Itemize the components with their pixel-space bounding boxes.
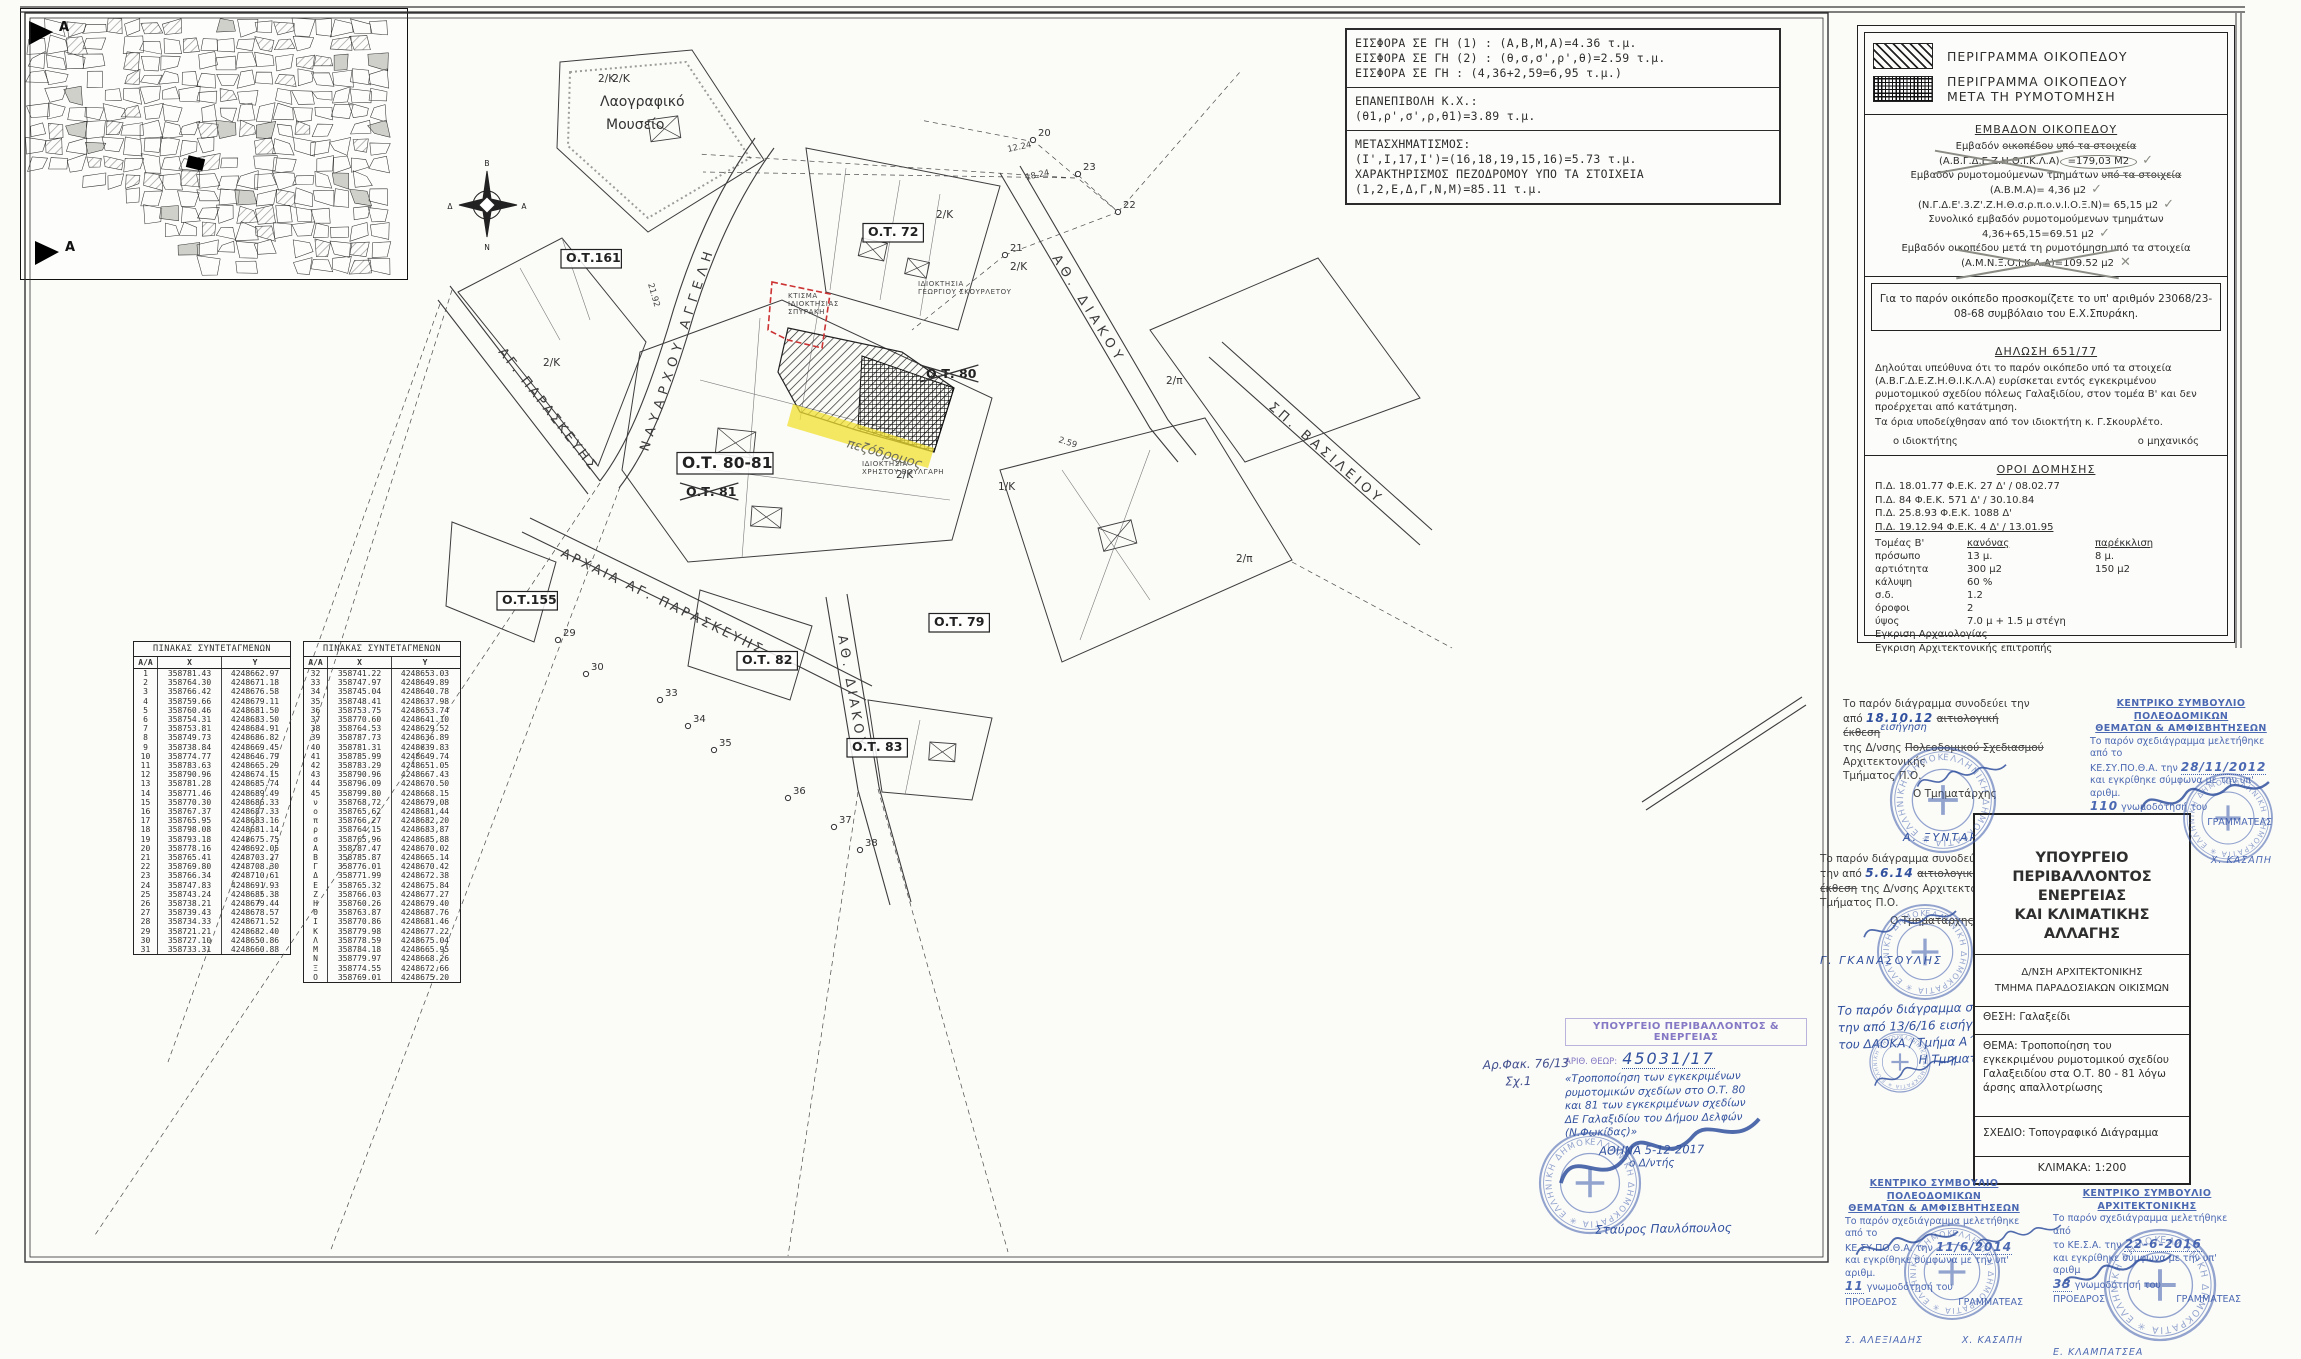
table-cell: 41 bbox=[304, 752, 328, 761]
inset-parcel bbox=[46, 138, 63, 155]
table-cell: 43 bbox=[304, 770, 328, 779]
inset-parcel bbox=[216, 227, 235, 239]
survey-point bbox=[685, 723, 690, 728]
table-cell: Ζ bbox=[304, 890, 328, 899]
property-label: ΙΔΙΟΚΤΗΣΙΑΓΕΩΡΓΙΟΥ ΣΚΟΥΡΛΕΤΟΥ bbox=[918, 280, 1012, 296]
table-cell: 39 bbox=[304, 733, 328, 742]
table-row: 17358765.954248683.16 bbox=[134, 816, 290, 825]
table-cell: 358799.80 bbox=[328, 789, 392, 798]
inset-parcel bbox=[83, 54, 105, 69]
stamp-roles: ΠΡΟΕΔΡΟΣΓΡΑΜΜΑΤΕΑΣ bbox=[1845, 1297, 2023, 1310]
inset-parcel bbox=[123, 137, 142, 156]
inset-parcel bbox=[312, 124, 333, 137]
parcel-label: 1/Κ bbox=[998, 481, 1016, 493]
table-cell: 27 bbox=[134, 908, 158, 917]
contribution-line: ΕΙΣΦΟΡΑ ΣΕ ΓΗ (1) : (Α,Β,Μ,Α)=4.36 τ.μ. bbox=[1355, 36, 1771, 51]
plot-outline-swatch bbox=[1873, 43, 1933, 69]
survey-point bbox=[711, 747, 716, 752]
oroi-cell bbox=[2095, 615, 2195, 628]
table-cell: 4248681.14 bbox=[222, 825, 288, 834]
inset-parcel bbox=[197, 207, 219, 219]
inset-parcel bbox=[254, 156, 278, 171]
signature-name: Σταύρος Παυλόπουλος bbox=[1595, 1220, 1807, 1237]
table-cell: 358743.24 bbox=[158, 890, 222, 899]
inset-parcel bbox=[296, 207, 312, 221]
declaration-text: Δηλούται υπεύθυνα ότι το παρόν οικόπεδο … bbox=[1875, 362, 2217, 414]
area-line: Συνολικό εμβαδόν ρυμοτομούμενων τμημάτων bbox=[1873, 213, 2219, 227]
inset-parcel bbox=[293, 176, 314, 185]
table-cell: 4248677.27 bbox=[392, 890, 458, 899]
table-row: 18358798.084248681.14 bbox=[134, 825, 290, 834]
inset-parcel bbox=[255, 226, 275, 241]
legend-box: ΠΕΡΙΓΡΑΜΜΑ ΟΙΚΟΠΕΔΟΥ ΠΕΡΙΓΡΑΜΜΑ ΟΙΚΟΠΕΔΟ… bbox=[1857, 25, 2235, 643]
ministry-title: ΥΠΟΥΡΓΕΙΟ ΠΕΡΙΒΑΛΛΟΝΤΟΣ ΕΝΕΡΓΕΙΑΣ ΚΑΙ ΚΛ… bbox=[1975, 815, 2189, 955]
table-row: 27358739.434248678.57 bbox=[134, 908, 290, 917]
sheet-number: Σχ.1 bbox=[1505, 1072, 1570, 1091]
table-cell: 6 bbox=[134, 715, 158, 724]
inset-parcel bbox=[27, 38, 46, 54]
inset-parcel bbox=[276, 205, 292, 222]
stamp-roles: ΠΡΟΕΔΡΟΣΓΡΑΜΜΑΤΕΑΣ bbox=[2053, 1294, 2241, 1307]
contribution-line: (θ1,ρ',σ',ρ,θ1)=3.89 τ.μ. bbox=[1355, 109, 1771, 124]
table-cell: 4248637.98 bbox=[392, 697, 458, 706]
table-row: 5358760.464248681.50 bbox=[134, 706, 290, 715]
table-row: 32358741.224248653.03 bbox=[304, 669, 460, 678]
table-cell: 358739.43 bbox=[158, 908, 222, 917]
table-row: 21358765.414248703.27 bbox=[134, 853, 290, 862]
crossed-out-mark bbox=[920, 365, 978, 382]
table-cell: 4248679.11 bbox=[222, 697, 288, 706]
inset-parcel bbox=[315, 239, 330, 257]
table-cell: 4248681.46 bbox=[392, 917, 458, 926]
table-cell: 358790.96 bbox=[158, 770, 222, 779]
inset-parcel bbox=[350, 36, 371, 50]
inset-parcel bbox=[350, 223, 368, 242]
stamp-header: ΘΕΜΑΤΩΝ & ΑΜΦΙΣΒΗΤΗΣΕΩΝ bbox=[2090, 723, 2272, 736]
inset-parcel bbox=[197, 91, 217, 103]
inset-parcel bbox=[350, 89, 371, 103]
inset-parcel bbox=[369, 156, 390, 173]
table-cell: 13 bbox=[134, 779, 158, 788]
building bbox=[929, 742, 956, 762]
table-cell: 4248671.52 bbox=[222, 917, 288, 926]
note-line: της Δ/νσης Πολεοδομικού Σχεδιασμού Αρχιτ… bbox=[1843, 741, 2083, 769]
ot-label-box bbox=[847, 739, 907, 758]
inset-parcel bbox=[274, 39, 295, 50]
table-row: 30358727.104248650.86 bbox=[134, 936, 290, 945]
inset-parcel bbox=[202, 104, 217, 121]
inset-parcel bbox=[256, 190, 276, 206]
table-cell: 3 bbox=[134, 687, 158, 696]
table-cell: 4248670.42 bbox=[392, 862, 458, 871]
table-row: 15358770.304248686.33 bbox=[134, 798, 290, 807]
table-cell: 358779.97 bbox=[328, 954, 392, 963]
oroi-cell: 60 % bbox=[1967, 576, 2095, 589]
survey-point bbox=[583, 671, 588, 676]
table-cell: 358785.87 bbox=[328, 853, 392, 862]
inset-parcel bbox=[217, 205, 234, 223]
table-row: Ν358779.974248668.26 bbox=[304, 954, 460, 963]
inset-parcel bbox=[255, 72, 273, 84]
table-cell: 358796.09 bbox=[328, 779, 392, 788]
table-cell: 38 bbox=[304, 724, 328, 733]
table-cell: 358764.53 bbox=[328, 724, 392, 733]
table-cell: 4248629.52 bbox=[392, 724, 458, 733]
inset-parcel bbox=[294, 188, 312, 207]
owner-label: ο ιδιοκτήτης bbox=[1893, 435, 1958, 448]
table-row: Α/ΑΧΥ bbox=[304, 657, 460, 669]
inset-parcel bbox=[235, 190, 257, 205]
table-cell: 358749.73 bbox=[158, 733, 222, 742]
parcel-label: 2/Κ bbox=[598, 73, 616, 85]
table-row: 7358753.814248684.91 bbox=[134, 724, 290, 733]
inset-parcel bbox=[220, 89, 237, 102]
stamp-line: Το παρόν σχεδιάγραμμα μελετήθηκε από το bbox=[1845, 1216, 2023, 1241]
street-label: ΑΘ. ΔΙΑΚΟΥ bbox=[1049, 252, 1128, 367]
table-row: Α/ΑΧΥ bbox=[134, 657, 290, 669]
inset-parcel bbox=[370, 143, 390, 155]
table-cell: Δ bbox=[304, 871, 328, 880]
inset-parcel bbox=[292, 18, 315, 37]
table-cell: 4248636.89 bbox=[392, 733, 458, 742]
inset-parcel bbox=[159, 71, 179, 84]
inset-parcel bbox=[237, 70, 255, 88]
inset-parcel bbox=[296, 55, 314, 69]
inset-parcel bbox=[126, 175, 140, 189]
stamp-line: το ΚΕ.Σ.Α. την 22-6-2016 bbox=[2053, 1238, 2241, 1253]
inset-parcel bbox=[369, 88, 387, 101]
area-line: (Ν.Γ.Δ.Ε'.3.Ζ'.Ζ.Η.Θ.σ.ρ.π.ο.ν.Ι.Ο.Ξ.Ν)=… bbox=[1873, 198, 2219, 213]
inset-parcel bbox=[121, 105, 141, 117]
table-cell: 4248662.97 bbox=[222, 669, 288, 678]
table-row: Γ358776.014248670.42 bbox=[304, 862, 460, 871]
inset-parcel bbox=[144, 137, 162, 152]
table-cell: 40 bbox=[304, 743, 328, 752]
table-row: 39358787.734248636.89 bbox=[304, 733, 460, 742]
inset-parcel bbox=[275, 89, 291, 105]
table-cell: 4248674.15 bbox=[222, 770, 288, 779]
inset-parcel bbox=[368, 120, 391, 137]
inset-parcel bbox=[238, 19, 258, 37]
table-cell: 5 bbox=[134, 706, 158, 715]
pd-line: Π.Δ. 18.01.77 Φ.Ε.Κ. 27 Δ' / 08.02.77 bbox=[1875, 480, 2217, 494]
table-row: Α358787.474248670.02 bbox=[304, 844, 460, 853]
table-cell: 9 bbox=[134, 743, 158, 752]
inset-parcel bbox=[162, 19, 181, 35]
inset-parcel bbox=[141, 191, 163, 206]
map-labels: ΑΓ. ΠΑΡΑΣΚΕΥΗΣΝΑΥΑΡΧΟΥ ΑΓΓΕΛΗΑΘ. ΔΙΑΚΟΥΣ… bbox=[447, 72, 1386, 853]
inset-parcel bbox=[144, 103, 163, 119]
inset-parcel bbox=[369, 21, 387, 35]
file-number: Αρ.Φακ. 76/13 bbox=[1483, 1055, 1570, 1074]
inset-parcel bbox=[140, 41, 162, 54]
inset-marker-label: Α bbox=[59, 20, 69, 35]
table-title: ΠΙΝΑΚΑΣ ΣΥΝΤΕΤΑΓΜΕΝΩΝ bbox=[134, 642, 290, 657]
inset-parcel bbox=[104, 156, 124, 170]
inset-parcel bbox=[83, 38, 106, 49]
contribution-line: ΜΕΤΑΣΧΗΜΑΤΙΣΜΟΣ: bbox=[1355, 137, 1771, 152]
inset-parcel bbox=[277, 124, 293, 137]
table-cell: Ν bbox=[304, 954, 328, 963]
note-line: Το παρόν διάγραμμα συνοδεύει την bbox=[1843, 697, 2083, 711]
table-row: 9358738.844248669.45 bbox=[134, 743, 290, 752]
inset-parcel bbox=[370, 223, 389, 240]
table-cell: 4248685,88 bbox=[392, 835, 458, 844]
table-cell: 358766.34 bbox=[158, 871, 222, 880]
table-row: 12358790.964248674.15 bbox=[134, 770, 290, 779]
inset-parcel bbox=[333, 70, 354, 87]
table-cell: 4248671.18 bbox=[222, 678, 288, 687]
inset-parcel bbox=[273, 103, 293, 120]
inset-parcel bbox=[311, 73, 334, 87]
inset-parcel bbox=[125, 69, 140, 84]
inset-parcel bbox=[121, 123, 144, 136]
table-cell: 358763.87 bbox=[328, 908, 392, 917]
museum-label: Μουσείο bbox=[606, 117, 665, 133]
inset-parcel bbox=[256, 103, 275, 122]
table-cell: 1 bbox=[134, 669, 158, 678]
inset-parcel bbox=[123, 88, 141, 104]
table-cell: Υ bbox=[392, 657, 458, 668]
inset-parcel bbox=[162, 122, 183, 139]
inset-parcel bbox=[217, 74, 239, 85]
inset-parcel bbox=[26, 70, 49, 82]
inset-parcel bbox=[163, 104, 182, 122]
inset-parcel bbox=[67, 154, 87, 172]
table-cell: 20 bbox=[134, 844, 158, 853]
inset-parcel bbox=[293, 36, 314, 51]
table-cell: 4248687.33 bbox=[222, 807, 288, 816]
inset-parcel bbox=[235, 222, 258, 241]
streets bbox=[438, 138, 1806, 905]
table-cell: Θ bbox=[304, 908, 328, 917]
inset-parcel bbox=[237, 206, 258, 223]
table-row: Λ358778.594248675.04 bbox=[304, 936, 460, 945]
dimension-label: 21.92 bbox=[645, 282, 661, 308]
table-cell: 4248675.75 bbox=[222, 835, 288, 844]
inset-parcel bbox=[28, 52, 45, 69]
table-cell: 358765,96 bbox=[328, 835, 392, 844]
inset-parcel bbox=[334, 189, 349, 208]
contribution-line: ΕΠΑΝΕΠΙΒΟΛΗ Κ.Χ.: bbox=[1355, 94, 1771, 109]
table-row: 44358796.094248670.50 bbox=[304, 779, 460, 788]
table-row: 8358749.734248686.82 bbox=[134, 733, 290, 742]
inset-parcel bbox=[178, 191, 200, 207]
table-cell: 25 bbox=[134, 890, 158, 899]
table-cell: 4248682.40 bbox=[222, 927, 288, 936]
inset-parcel bbox=[180, 140, 197, 156]
inset-parcel bbox=[332, 173, 348, 189]
stamp-header: ΥΠΟΥΡΓΕΙΟ ΠΕΡΙΒΑΛΛΟΝΤΟΣ & ΕΝΕΡΓΕΙΑΣ bbox=[1565, 1018, 1807, 1046]
inset-parcel bbox=[275, 74, 296, 86]
table-cell: 358770.60 bbox=[328, 715, 392, 724]
table-row: Ε358765.324248675.84 bbox=[304, 881, 460, 890]
inset-parcel bbox=[106, 121, 123, 135]
table-cell: 4248678.57 bbox=[222, 908, 288, 917]
inset-parcel bbox=[256, 121, 275, 138]
table-row: ν358768,724248679,08 bbox=[304, 798, 460, 807]
inset-parcel bbox=[311, 208, 330, 223]
table-cell: Ο bbox=[304, 973, 328, 982]
table-cell: 8 bbox=[134, 733, 158, 742]
table-cell: 4248684.91 bbox=[222, 724, 288, 733]
survey-point bbox=[555, 637, 560, 642]
dimension-label: 12.24 bbox=[1007, 140, 1033, 155]
inset-subject-parcel bbox=[186, 155, 205, 171]
inset-parcel bbox=[179, 121, 200, 135]
inset-parcel bbox=[368, 208, 388, 222]
area-line: (Α.Β.Μ.Α)= 4,36 μ2✓ bbox=[1873, 183, 2219, 198]
inset-parcel bbox=[201, 39, 218, 51]
inset-parcel bbox=[332, 87, 350, 103]
table-title: ΠΙΝΑΚΑΣ ΣΥΝΤΕΤΑΓΜΕΝΩΝ bbox=[304, 642, 460, 657]
ot-label: Ο.Τ.161 bbox=[566, 250, 621, 265]
table-cell: 42 bbox=[304, 761, 328, 770]
ot-label-box bbox=[677, 453, 773, 475]
table-cell: 358727.10 bbox=[158, 936, 222, 945]
inset-marker-label: Α bbox=[65, 240, 75, 255]
table-row: 14358771.464248689.49 bbox=[134, 789, 290, 798]
table-row: 23358766.344248710.61 bbox=[134, 871, 290, 880]
oroi-cell: 13 μ. bbox=[1967, 550, 2095, 563]
table-cell: 4248653.74 bbox=[392, 706, 458, 715]
table-cell: 4248683.16 bbox=[222, 816, 288, 825]
compass-icon bbox=[459, 171, 517, 237]
table-cell: 358771.46 bbox=[158, 789, 222, 798]
inset-parcel bbox=[46, 55, 66, 70]
role-label: Ο Τμηματάρχης bbox=[1913, 787, 2083, 801]
table-cell: 358768,72 bbox=[328, 798, 392, 807]
table-row: ρ358764,154248683,87 bbox=[304, 825, 460, 834]
inset-parcel bbox=[66, 138, 86, 154]
inset-parcel bbox=[144, 172, 164, 190]
x-mark-icon: ✕ bbox=[2114, 255, 2131, 270]
inset-parcel bbox=[103, 104, 125, 122]
table-cell: 14 bbox=[134, 789, 158, 798]
oroi-cell: 8 μ. bbox=[2095, 550, 2195, 563]
inset-parcel bbox=[353, 139, 368, 152]
table-cell: 4248660.88 bbox=[222, 945, 288, 954]
survey-point bbox=[1075, 171, 1080, 176]
table-row: 20358778.164248692.05 bbox=[134, 844, 290, 853]
table-cell: 44 bbox=[304, 779, 328, 788]
inset-parcel bbox=[236, 241, 258, 258]
ot-label: Ο.Τ. 79 bbox=[934, 614, 984, 629]
table-cell: 358765,62 bbox=[328, 807, 392, 816]
survey-point bbox=[1030, 137, 1035, 142]
dimension-label: 2.59 bbox=[1057, 435, 1078, 450]
inset-parcel bbox=[292, 222, 315, 236]
table-cell: ρ bbox=[304, 825, 328, 834]
table-cell: 358738.84 bbox=[158, 743, 222, 752]
table-cell: 358770.30 bbox=[158, 798, 222, 807]
table-row: Ι358770.864248681.46 bbox=[304, 917, 460, 926]
inset-parcel bbox=[315, 107, 333, 120]
table-cell: 358769.80 bbox=[158, 862, 222, 871]
inset-parcel bbox=[216, 120, 236, 138]
table-cell: 4248679,08 bbox=[392, 798, 458, 807]
inset-parcel bbox=[330, 37, 352, 51]
table-cell: 358778.16 bbox=[158, 844, 222, 853]
table-row: 28358734.334248671.52 bbox=[134, 917, 290, 926]
survey-point bbox=[857, 847, 862, 852]
table-cell: 4248675.20 bbox=[392, 973, 458, 982]
building bbox=[905, 258, 930, 278]
engineer-label: ο μηχανικός bbox=[2138, 435, 2199, 448]
table-row: Δ358771.994248672.38 bbox=[304, 871, 460, 880]
inset-parcel bbox=[254, 239, 276, 254]
inset-parcel bbox=[31, 123, 46, 137]
inset-key-map: ΑΑ bbox=[20, 8, 408, 280]
table-cell: 4248677.22 bbox=[392, 927, 458, 936]
file-number-note: Αρ.Φακ. 76/13 Σχ.1 bbox=[1483, 1055, 1570, 1091]
inset-parcel bbox=[314, 56, 333, 66]
inset-map-canvas: ΑΑ bbox=[21, 9, 409, 281]
inset-parcel bbox=[181, 207, 200, 223]
ot-label: Ο.Τ. 83 bbox=[852, 739, 902, 754]
table-cell: 10 bbox=[134, 752, 158, 761]
inset-parcel bbox=[183, 38, 199, 53]
table-cell: 33 bbox=[304, 678, 328, 687]
table-row: σ358765,964248685,88 bbox=[304, 835, 460, 844]
stamp-line: 33 γνωμοδότησή του bbox=[2053, 1278, 2241, 1293]
oroi-cell: όροφοι bbox=[1875, 602, 1967, 615]
inset-parcel bbox=[197, 240, 218, 256]
table-row: 4358759.664248679.11 bbox=[134, 697, 290, 706]
table-cell: 358741.22 bbox=[328, 669, 392, 678]
inset-parcel bbox=[293, 138, 315, 157]
table-cell: 4248651.05 bbox=[392, 761, 458, 770]
table-cell: 17 bbox=[134, 816, 158, 825]
inset-parcel bbox=[315, 171, 332, 188]
table-cell: 358760.46 bbox=[158, 706, 222, 715]
inset-parcel bbox=[311, 260, 333, 272]
oroi-cell bbox=[2095, 589, 2195, 602]
table-cell: 4248710.61 bbox=[222, 871, 288, 880]
oroi-header: Τομέας Β' bbox=[1875, 537, 1967, 550]
table-cell: 4248669.45 bbox=[222, 743, 288, 752]
ot-label: Ο.Τ. 72 bbox=[868, 224, 918, 239]
inset-parcel bbox=[45, 86, 67, 102]
scanned-topographic-sheet: { "colors": {"ink":"#31519f","stamp_blue… bbox=[0, 0, 2301, 1359]
plot-outline-hatched bbox=[778, 328, 954, 452]
table-cell: 4248679.44 bbox=[222, 899, 288, 908]
contribution-section-3: ΜΕΤΑΣΧΗΜΑΤΙΣΜΟΣ:(Ι',Ι,17,Ι')=(16,18,19,1… bbox=[1347, 131, 1779, 203]
inset-parcel bbox=[331, 104, 353, 118]
table-cell: 358770.86 bbox=[328, 917, 392, 926]
drawing-row: ΣΧΕΔΙΟ: Τοπογραφικό Διάγραμμα bbox=[1975, 1117, 2189, 1157]
table-cell: Α bbox=[304, 844, 328, 853]
inset-parcel bbox=[105, 89, 121, 101]
inset-parcel bbox=[237, 91, 258, 106]
oroi-cell: 150 μ2 bbox=[2095, 563, 2195, 576]
table-cell: 358771.99 bbox=[328, 871, 392, 880]
table-row: 34358745.044248640.78 bbox=[304, 687, 460, 696]
table-cell: ν bbox=[304, 798, 328, 807]
inset-parcel bbox=[181, 171, 200, 187]
inset-parcel bbox=[66, 37, 87, 55]
stamp-header: ΚΕΝΤΡΙΚΟ ΣΥΜΒΟΥΛΙΟ ΠΟΛΕΟΔΟΜΙΚΩΝ bbox=[2090, 698, 2272, 723]
inset-parcel bbox=[369, 69, 389, 88]
oroi-cell: ύψος bbox=[1875, 615, 1967, 628]
inset-parcel bbox=[273, 158, 297, 174]
museum-label: Λαογραφικό bbox=[600, 94, 685, 110]
declaration-651-77: ΔΗΛΩΣΗ 651/77 Δηλούται υπεύθυνα ότι το π… bbox=[1865, 337, 2227, 456]
street-label: ΑΡΧΑΙΑ ΑΓ. ΠΑΡΑΣΚΕΥΗΣ bbox=[558, 546, 767, 658]
table-cell: 358785.99 bbox=[328, 752, 392, 761]
table-cell: 358767.37 bbox=[158, 807, 222, 816]
ot-label-box bbox=[561, 250, 621, 269]
